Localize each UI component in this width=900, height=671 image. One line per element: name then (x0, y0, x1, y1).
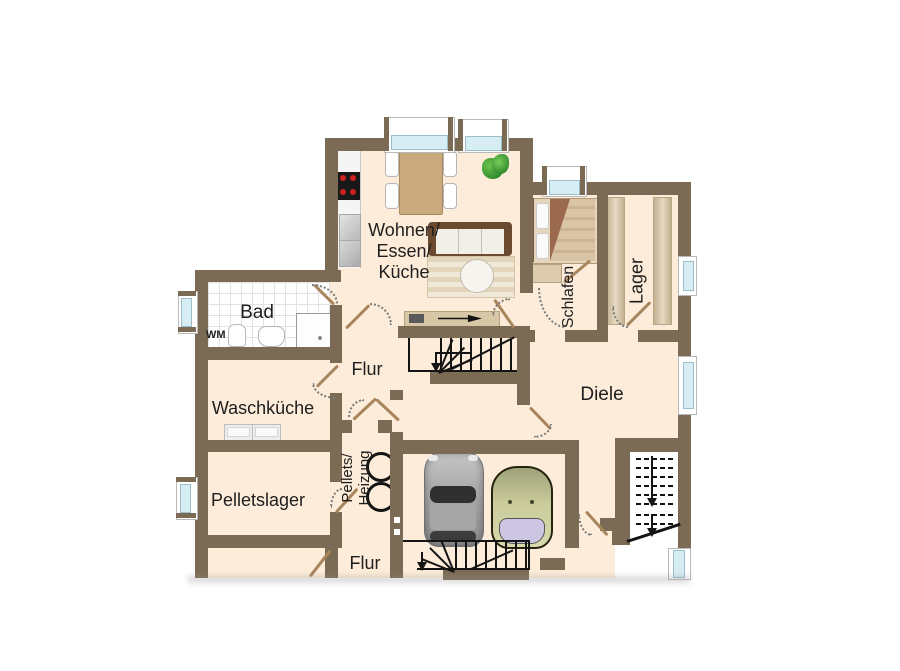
chair (443, 151, 457, 177)
chair (385, 183, 399, 209)
staircase-upper (408, 338, 517, 372)
wall-detail (394, 517, 400, 523)
stove-burner (350, 175, 356, 181)
stair-treads (455, 540, 530, 570)
wall (565, 330, 597, 342)
window-frame (580, 166, 585, 195)
pillow (536, 233, 549, 259)
room-label-diele: Diele (562, 384, 642, 406)
stair-arrow-head (431, 363, 441, 372)
room-label-line: Pellets/ (339, 453, 356, 502)
wall (638, 330, 691, 342)
wall (398, 326, 530, 338)
label-wm: WM (206, 329, 226, 341)
room-label-line: Heizung (356, 450, 373, 505)
wall (342, 420, 352, 433)
pillow (536, 203, 549, 229)
crop-shadow (188, 576, 690, 583)
stair-arrow-line (651, 456, 653, 500)
room-label-line: Essen/ (376, 241, 431, 261)
car-gray-headlight (428, 455, 438, 461)
wall (565, 440, 579, 548)
window-glass (391, 135, 448, 150)
wall (430, 372, 530, 384)
plant (492, 154, 509, 174)
wall (378, 420, 392, 433)
stair-outline (528, 540, 530, 570)
door-opening (535, 330, 565, 342)
room-label-pellets-heizung: Pellets/ Heizung (339, 450, 373, 505)
window-glass (465, 136, 502, 151)
stove-burner (340, 189, 346, 195)
stair-outline (408, 338, 410, 372)
car-green-detail (508, 500, 512, 504)
stove-burner (350, 189, 356, 195)
window-glass (180, 484, 191, 513)
room-label-line: Küche (378, 262, 429, 282)
window-glass (683, 261, 694, 291)
wall (540, 558, 565, 570)
staircase-lower (403, 540, 530, 578)
wall (678, 438, 691, 548)
wall-detail (394, 529, 400, 535)
window-frame (384, 117, 389, 151)
stair-outline (403, 540, 530, 542)
door-opening (608, 330, 638, 342)
window-frame (458, 119, 463, 151)
window-glass (673, 550, 685, 578)
room-label-schlafen: Schlafen (560, 266, 578, 328)
room-label-flur-unten: Flur (339, 553, 391, 574)
room-label-lager: Lager (627, 258, 648, 304)
wall (520, 195, 533, 293)
appliance-top (255, 427, 278, 437)
shower-drain (318, 336, 322, 340)
car-gray-windshield (430, 486, 476, 503)
wall (195, 535, 342, 548)
wall (208, 347, 342, 360)
room-label-flur: Flur (341, 359, 393, 380)
wall (597, 195, 608, 342)
wall (195, 270, 341, 282)
car-green-detail (530, 500, 534, 504)
window-glass (683, 362, 694, 409)
window-frame (178, 327, 196, 332)
stair-arrow-line (421, 552, 423, 564)
car-gray-headlight (468, 455, 478, 461)
chair (443, 183, 457, 209)
wall (325, 138, 338, 270)
room-label-pelletslager: Pelletslager (197, 490, 319, 511)
laundry-basket (228, 324, 246, 347)
shower (296, 313, 331, 348)
room-label-line: Wohnen/ (368, 220, 440, 240)
window-glass (181, 298, 192, 327)
car-gray-roof (430, 504, 476, 530)
door-opening (517, 405, 530, 440)
appliance-top (227, 427, 250, 437)
room-label-wohnen: Wohnen/ Essen/ Küche (343, 220, 465, 283)
window-glass (549, 180, 580, 195)
window-frame (542, 166, 547, 195)
window-frame (448, 117, 453, 151)
staircase-exterior (630, 452, 678, 545)
stair-arrow-line (436, 352, 472, 354)
room-label-bad: Bad (236, 302, 278, 324)
toilet (258, 326, 285, 347)
dining-table (399, 145, 443, 215)
room-label-waschkueche: Waschküche (202, 398, 324, 419)
window-frame (176, 513, 196, 518)
window-frame (178, 291, 196, 296)
chair (385, 151, 399, 177)
wall (615, 438, 630, 518)
floorplan-canvas: Wohnen/ Essen/ Küche Schlafen Lager Bad … (0, 0, 900, 671)
wall (403, 440, 577, 454)
stove-burner (340, 175, 346, 181)
window-frame (176, 477, 196, 482)
wall (390, 432, 403, 578)
stair-arrow-head (647, 498, 657, 507)
sideboard-item (409, 314, 424, 323)
wall (520, 330, 535, 342)
window-frame (502, 119, 507, 151)
wall (195, 440, 342, 452)
wall (390, 390, 403, 400)
stair-outline (408, 370, 517, 372)
coffee-table (460, 259, 494, 293)
shelf (653, 197, 672, 325)
